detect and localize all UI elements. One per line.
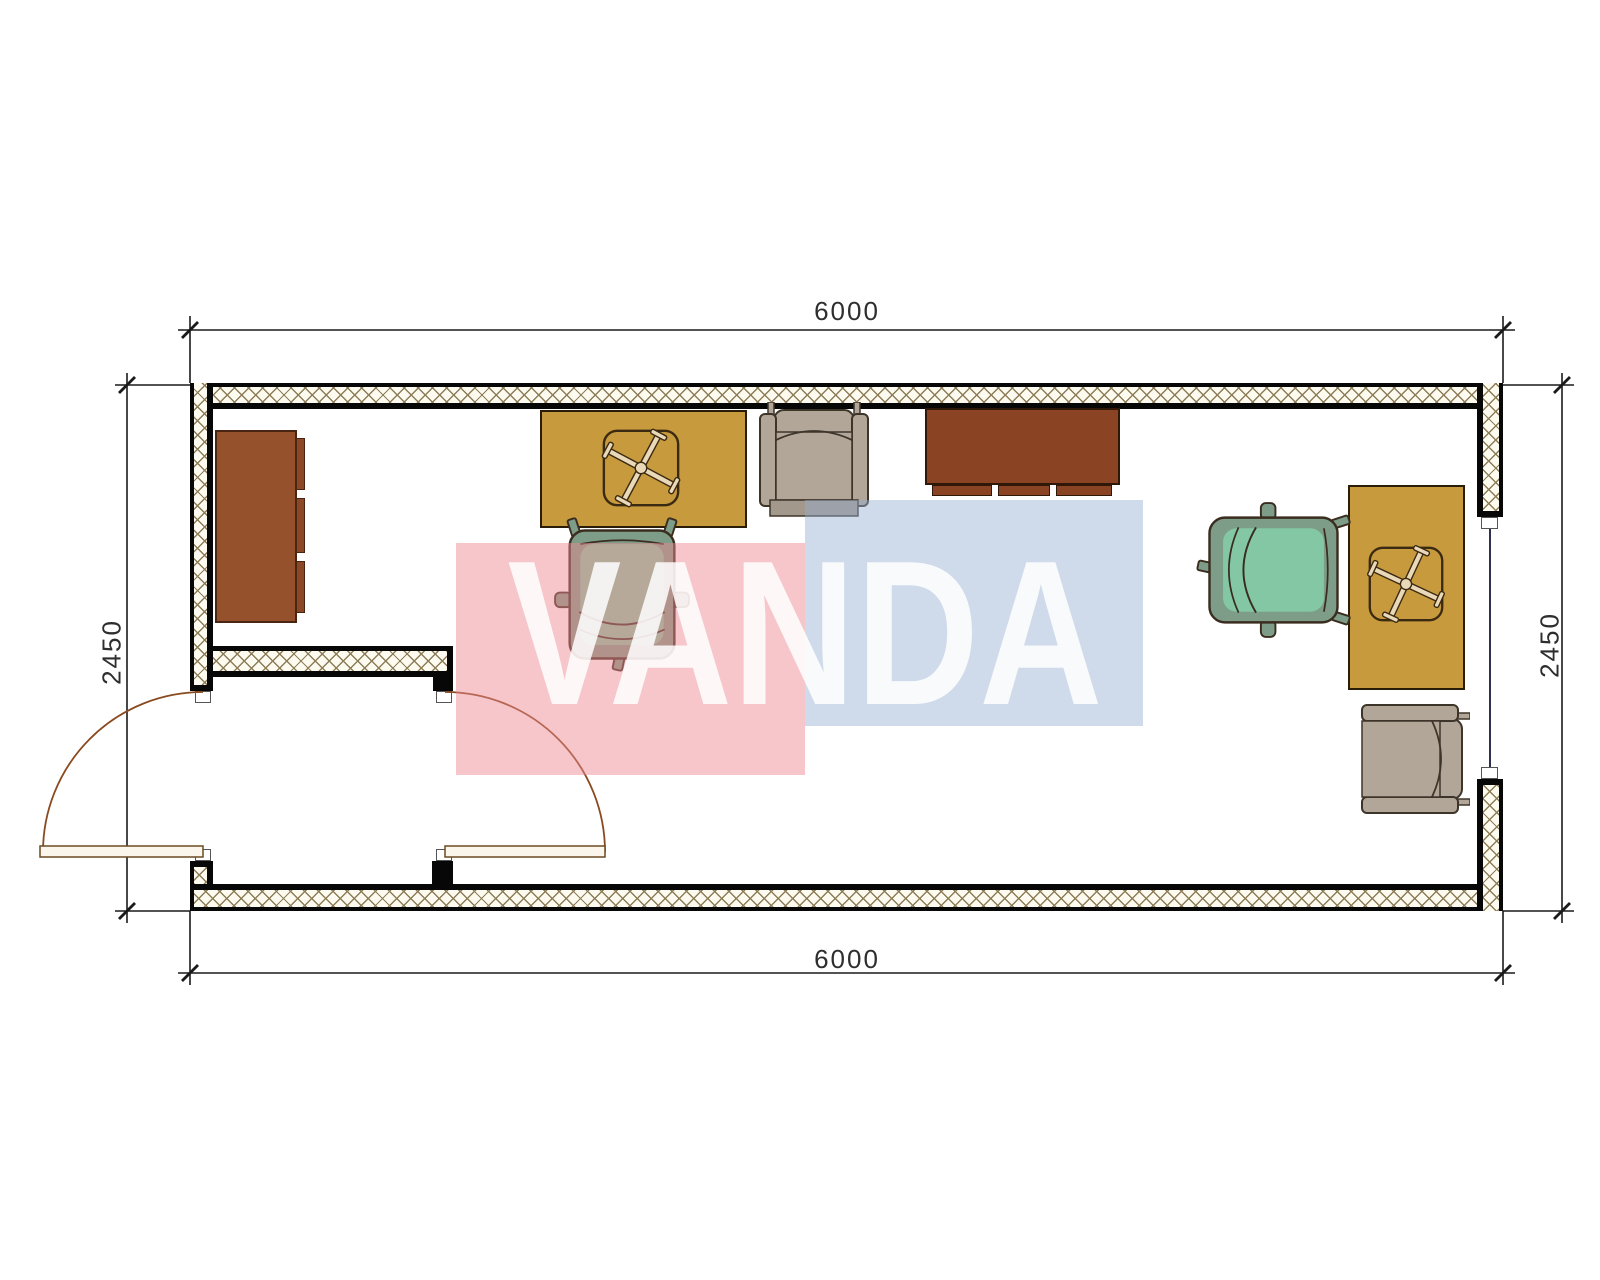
door-leaf-left <box>40 846 203 857</box>
door-leaf-right <box>445 846 605 857</box>
watermark-text: VANDA <box>502 528 1108 738</box>
